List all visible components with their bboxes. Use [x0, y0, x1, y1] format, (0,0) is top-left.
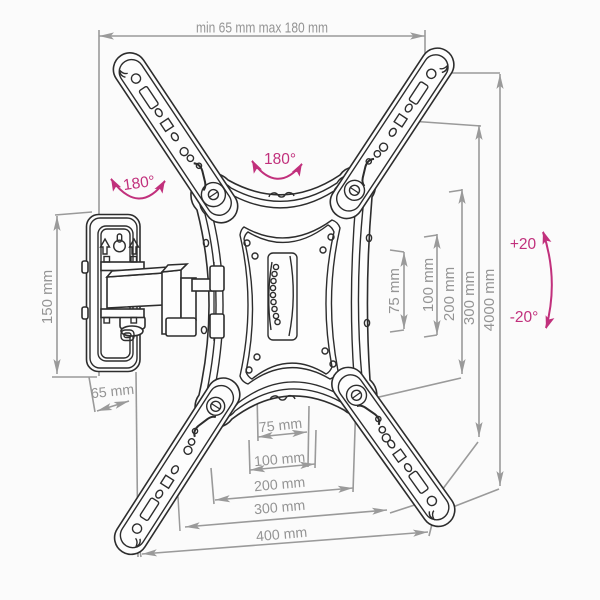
svg-text:-20°: -20° — [510, 309, 539, 326]
svg-text:180°: 180° — [264, 151, 296, 168]
svg-text:75 mm: 75 mm — [386, 268, 403, 314]
svg-text:150 mm: 150 mm — [39, 270, 56, 324]
svg-text:100 mm: 100 mm — [420, 258, 437, 312]
svg-text:4000 mm: 4000 mm — [481, 269, 498, 332]
svg-text:min 65 mm max 180 mm: min 65 mm max 180 mm — [196, 20, 328, 37]
svg-text:200 mm: 200 mm — [441, 267, 458, 321]
svg-text:+20: +20 — [510, 236, 537, 253]
svg-text:300 mm: 300 mm — [461, 271, 478, 325]
